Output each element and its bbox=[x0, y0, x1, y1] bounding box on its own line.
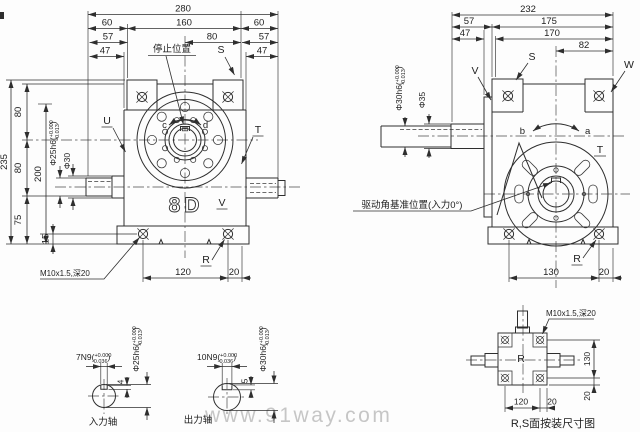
face-label-s: S bbox=[528, 51, 535, 63]
face-label-r: R bbox=[202, 254, 210, 266]
face-label-t: T bbox=[255, 124, 262, 136]
shaft-dia-25h6: Φ25h6(+0.000-0.013) bbox=[131, 326, 144, 372]
side-bolt-holes bbox=[502, 90, 604, 239]
input-shaft-detail: 7N9(+0.000-0.036) 4 Φ25h6(+0.000-0.013) … bbox=[76, 326, 151, 428]
dim-57: 57 bbox=[464, 16, 475, 27]
keyway-depth-4: 4 bbox=[116, 379, 126, 384]
rotation-label-c: c bbox=[162, 120, 167, 131]
dim-75: 75 bbox=[13, 215, 24, 226]
dim-60-right: 60 bbox=[254, 18, 265, 29]
side-view: 232 57 175 47 170 82 Φ30h6(+0.000-0.013)… bbox=[353, 4, 634, 288]
dim-47-left: 47 bbox=[100, 46, 111, 57]
dim-dia35: Φ35 bbox=[417, 92, 427, 109]
thread-note: M10x1.5,深20 bbox=[40, 269, 90, 278]
dim-57-left: 57 bbox=[103, 32, 114, 43]
dim-232: 232 bbox=[520, 4, 536, 15]
dim-280: 280 bbox=[175, 4, 191, 15]
mount-face-detail: R M10x1.5,深20 130 20 120 20 R,S面按装尺寸图 bbox=[466, 305, 600, 430]
mount-dim-20h: 20 bbox=[547, 397, 557, 407]
dim-80-b: 80 bbox=[13, 163, 24, 174]
rotation-label-b: b bbox=[520, 126, 525, 137]
dim-235: 235 bbox=[0, 154, 10, 170]
keyway-depth-5: 5 bbox=[240, 378, 250, 383]
mount-face-label-r: R bbox=[517, 353, 525, 365]
dim-47-right: 47 bbox=[257, 46, 268, 57]
dim-80-center: 80 bbox=[207, 32, 218, 43]
input-shaft-dims bbox=[86, 363, 151, 420]
dim-82: 82 bbox=[579, 40, 590, 51]
face-label-v: V bbox=[218, 197, 225, 209]
face-label-u: U bbox=[103, 115, 111, 127]
face-label-t: T bbox=[597, 144, 604, 156]
dim-170: 170 bbox=[544, 28, 560, 39]
dim-200: 200 bbox=[33, 166, 44, 182]
front-dimension-texts: 280 60 160 60 57 80 57 47 47 235 80 80 7… bbox=[0, 4, 269, 279]
dim-130: 130 bbox=[543, 267, 559, 278]
drive-angle-note: 驱动角基准位置(入力0°) bbox=[362, 199, 463, 211]
dim-15: 15 bbox=[41, 234, 52, 245]
stop-position-label: 停止位置 bbox=[153, 43, 191, 55]
side-extension-lines bbox=[424, 12, 613, 282]
dim-20: 20 bbox=[599, 267, 610, 278]
mount-dim-120: 120 bbox=[514, 397, 528, 407]
output-shaft-caption: 出力轴 bbox=[184, 414, 213, 426]
dim-dia30: Φ30 bbox=[62, 153, 72, 170]
drawing-canvas: www.91way.com bbox=[0, 0, 640, 432]
front-centerlines bbox=[22, 36, 300, 258]
front-view: 8D bbox=[0, 4, 300, 283]
dim-175: 175 bbox=[541, 16, 557, 27]
edge-artifact bbox=[0, 12, 4, 19]
shaft-dia-30h6: Φ30h6(+0.000-0.013) bbox=[258, 326, 271, 372]
keyway-dim-10n9: 10N9(+0.000-0.036) bbox=[197, 352, 237, 365]
dim-20: 20 bbox=[229, 267, 240, 278]
mount-thread-note: M10x1.5,深20 bbox=[546, 309, 596, 318]
dim-80-a: 80 bbox=[13, 107, 24, 118]
dim-dia25h6: Φ25h6(+0.000-0.013) bbox=[48, 120, 61, 166]
mount-dim-20v: 20 bbox=[582, 391, 592, 401]
face-label-w: W bbox=[624, 59, 634, 71]
watermark-text: www.91way.com bbox=[204, 404, 392, 427]
keyway-dim-7n9: 7N9(+0.000-0.036) bbox=[76, 352, 111, 365]
face-label-r: R bbox=[573, 253, 581, 265]
dim-160: 160 bbox=[176, 18, 192, 29]
dim-47: 47 bbox=[460, 28, 471, 39]
brand-logo: 8D bbox=[169, 194, 204, 217]
rotation-label-a: a bbox=[585, 126, 591, 137]
mount-dim-130: 130 bbox=[582, 352, 592, 366]
mount-caption: R,S面按装尺寸图 bbox=[511, 416, 595, 430]
dim-120: 120 bbox=[175, 267, 191, 278]
rotation-label-d: d bbox=[203, 120, 208, 131]
drawing-page: www.91way.com bbox=[0, 0, 640, 432]
dim-dia30h6: Φ30h6(+0.000-0.013) bbox=[394, 65, 407, 111]
dim-60-left: 60 bbox=[102, 18, 113, 29]
input-shaft-caption: 入力轴 bbox=[89, 416, 118, 428]
side-centerlines bbox=[418, 46, 630, 288]
side-dimension-texts: 232 57 175 47 170 82 Φ30h6(+0.000-0.013)… bbox=[394, 4, 609, 278]
face-label-v: V bbox=[471, 65, 478, 77]
front-housing bbox=[86, 80, 285, 244]
face-label-s: S bbox=[217, 44, 224, 56]
dim-57-right: 57 bbox=[259, 32, 270, 43]
